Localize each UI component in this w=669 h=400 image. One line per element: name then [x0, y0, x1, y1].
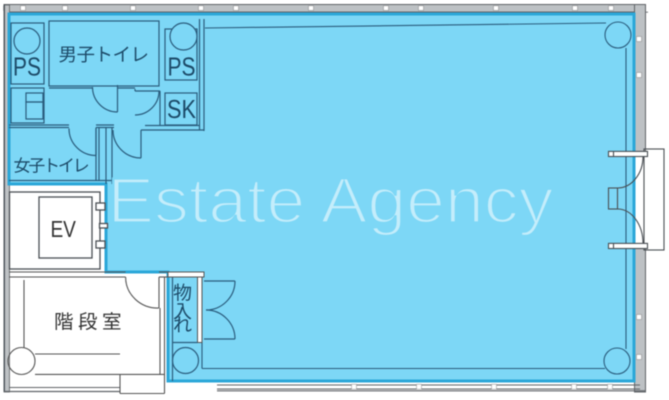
svg-text:PS: PS — [168, 52, 196, 82]
svg-text:Estate Agency: Estate Agency — [108, 165, 554, 237]
svg-text:SK: SK — [167, 94, 197, 124]
svg-text:EV: EV — [50, 216, 76, 242]
svg-text:PS: PS — [13, 52, 41, 82]
